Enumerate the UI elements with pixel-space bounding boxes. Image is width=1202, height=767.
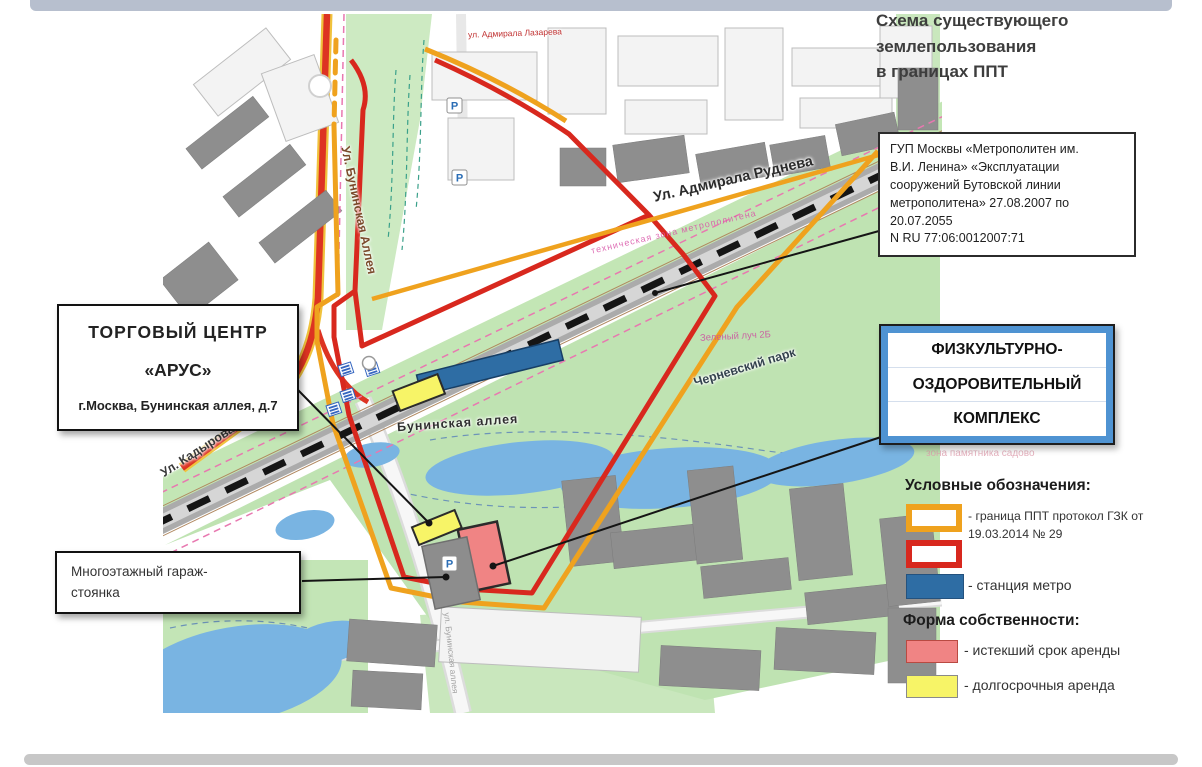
roundabout <box>309 75 331 97</box>
info-line: 20.07.2055 <box>890 213 1124 231</box>
parking-icon: P <box>452 170 467 185</box>
shopping-center-name: «АРУС» <box>59 360 297 381</box>
info-line: метрополитена» 27.08.2007 по <box>890 195 1124 213</box>
garage-callout: Многоэтажный гараж- стоянка <box>55 551 301 614</box>
legend-swatch-boundary-red <box>906 540 962 568</box>
info-line: N RU 77:06:0012007:71 <box>890 230 1124 248</box>
parking-icon: P <box>447 98 462 113</box>
legend-swatch-boundary-ppt <box>906 504 962 532</box>
legend-swatch-longterm-lease <box>906 675 958 698</box>
fok-line: ОЗДОРОВИТЕЛЬНЫЙ <box>888 368 1106 403</box>
parking-icon: P <box>442 556 457 571</box>
metro-rights-info-box: ГУП Москвы «Метрополитен им. В.И. Ленина… <box>878 132 1136 257</box>
title-line: землепользования <box>876 34 1156 60</box>
legend-label-boundary-ppt: - граница ППТ протокол ГЗК от 19.03.2014… <box>968 507 1163 544</box>
shopping-center-address: г.Москва, Бунинская аллея, д.7 <box>59 398 297 413</box>
legend-label-metro-station: - станция метро <box>968 577 1072 593</box>
svg-text:P: P <box>456 173 463 185</box>
page-title: Схема существующего землепользования в г… <box>876 8 1156 85</box>
bottom-divider-bar <box>24 754 1178 765</box>
legend-title: Условные обозначения: <box>905 477 1091 495</box>
shopping-center-callout: ТОРГОВЫЙ ЦЕНТР «АРУС» г.Москва, Бунинска… <box>57 304 299 431</box>
garage-label-line: Многоэтажный гараж- <box>71 562 285 583</box>
fok-line: КОМПЛЕКС <box>888 402 1106 436</box>
title-line: Схема существующего <box>876 8 1156 34</box>
sadovo-zone-label: зона памятника садово <box>926 448 1035 459</box>
shopping-center-title: ТОРГОВЫЙ ЦЕНТР <box>59 322 297 343</box>
map-poi-icon <box>363 357 376 370</box>
garage-label-line: стоянка <box>71 583 285 604</box>
info-line: сооружений Бутовской линии <box>890 177 1124 195</box>
svg-text:P: P <box>451 101 458 113</box>
land-use-scheme-slide: { "title": { "lines": ["Схема существующ… <box>0 0 1202 767</box>
title-line: в границах ППТ <box>876 59 1156 85</box>
fitness-complex-callout: ФИЗКУЛЬТУРНО- ОЗДОРОВИТЕЛЬНЫЙ КОМПЛЕКС <box>879 324 1115 445</box>
legend-label-expired-lease: - истекший срок аренды <box>964 642 1120 658</box>
legend-label-longterm-lease: - долгосрочныя аренда <box>964 677 1115 693</box>
legend-swatch-expired-lease <box>906 640 958 663</box>
info-line: В.И. Ленина» «Эксплуатации <box>890 159 1124 177</box>
fok-line: ФИЗКУЛЬТУРНО- <box>888 333 1106 368</box>
legend-ownership-title: Форма собственности: <box>903 612 1080 630</box>
legend-swatch-metro-station <box>906 574 964 599</box>
info-line: ГУП Москвы «Метрополитен им. <box>890 141 1124 159</box>
svg-text:P: P <box>446 559 453 571</box>
